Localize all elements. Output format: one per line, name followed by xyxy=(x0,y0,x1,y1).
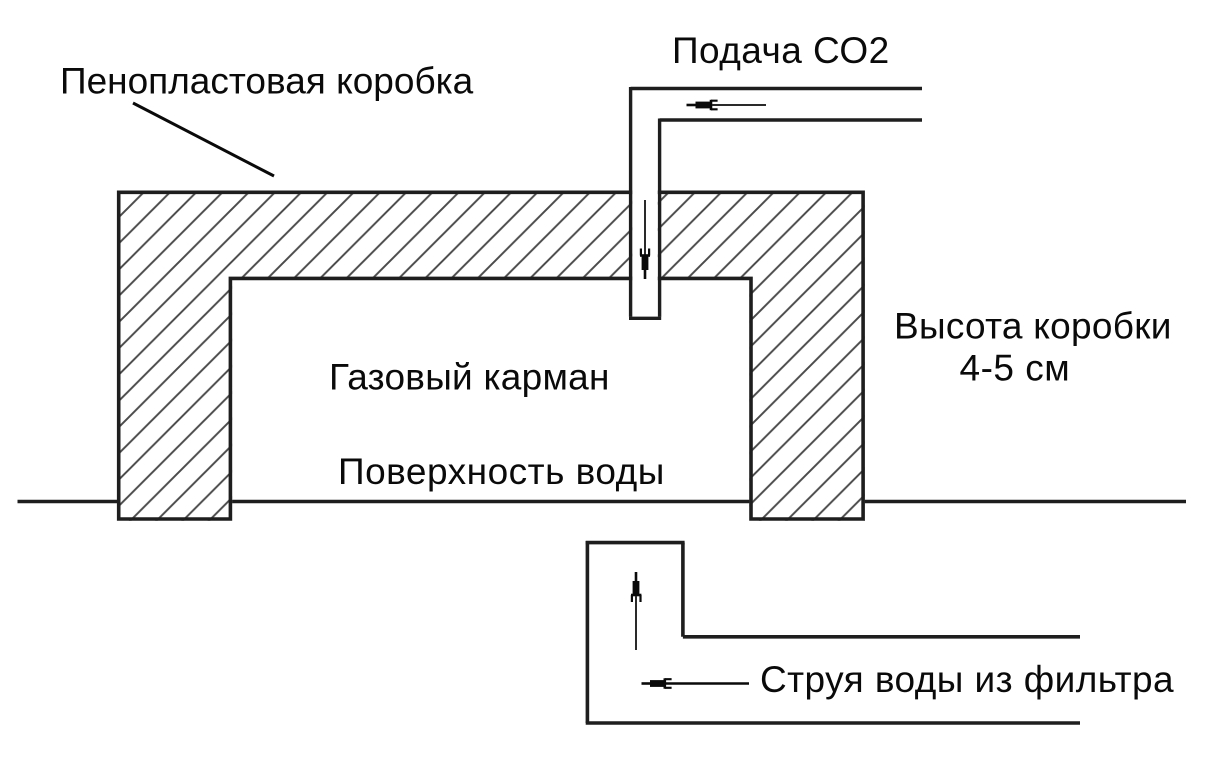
svg-text:Пенопластовая коробка: Пенопластовая коробка xyxy=(60,60,474,101)
svg-text:Поверхность воды: Поверхность воды xyxy=(338,451,665,492)
svg-text:Подача СО2: Подача СО2 xyxy=(672,30,890,71)
svg-text:Высота коробки: Высота коробки xyxy=(894,306,1172,347)
svg-text:Струя воды из фильтра: Струя воды из фильтра xyxy=(760,659,1174,700)
svg-text:4-5 см: 4-5 см xyxy=(960,347,1071,388)
svg-text:Газовый карман: Газовый карман xyxy=(329,357,610,398)
